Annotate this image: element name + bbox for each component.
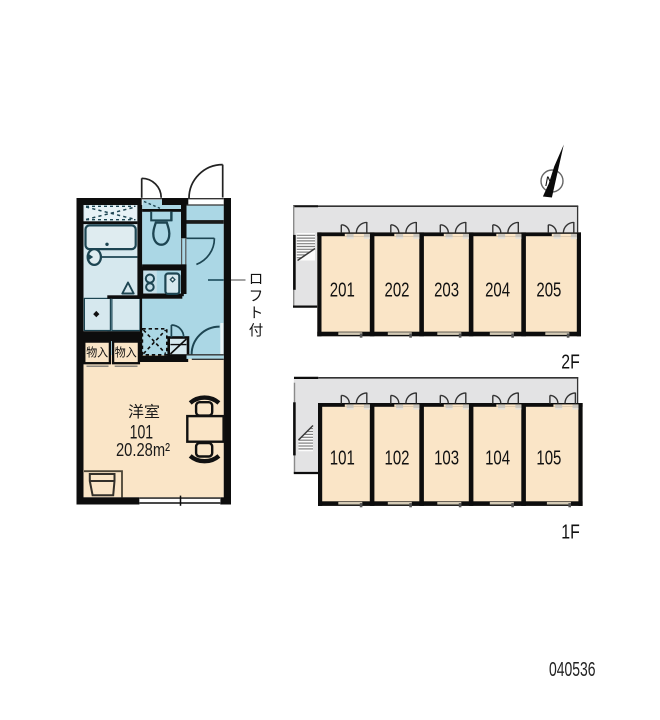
svg-text:102: 102 — [385, 446, 410, 469]
svg-text:103: 103 — [434, 446, 459, 469]
svg-text:205: 205 — [536, 278, 561, 301]
svg-text:105: 105 — [536, 446, 561, 469]
svg-text:フ: フ — [249, 289, 264, 305]
svg-text:物入: 物入 — [115, 345, 137, 359]
svg-text:201: 201 — [330, 278, 355, 301]
svg-text:ロ: ロ — [249, 272, 264, 288]
svg-text:202: 202 — [385, 278, 410, 301]
svg-text:204: 204 — [485, 278, 510, 301]
svg-text:101: 101 — [330, 446, 355, 469]
svg-text:104: 104 — [485, 446, 510, 469]
svg-text:物入: 物入 — [86, 345, 108, 359]
svg-text:040536: 040536 — [549, 659, 596, 681]
svg-text:203: 203 — [434, 278, 459, 301]
svg-text:洋室: 洋室 — [128, 403, 160, 421]
svg-text:1F: 1F — [561, 521, 580, 543]
svg-text:2F: 2F — [561, 351, 580, 373]
svg-text:ト: ト — [249, 306, 264, 322]
svg-text:付: 付 — [249, 322, 264, 339]
svg-text:20.28m²: 20.28m² — [116, 439, 170, 460]
